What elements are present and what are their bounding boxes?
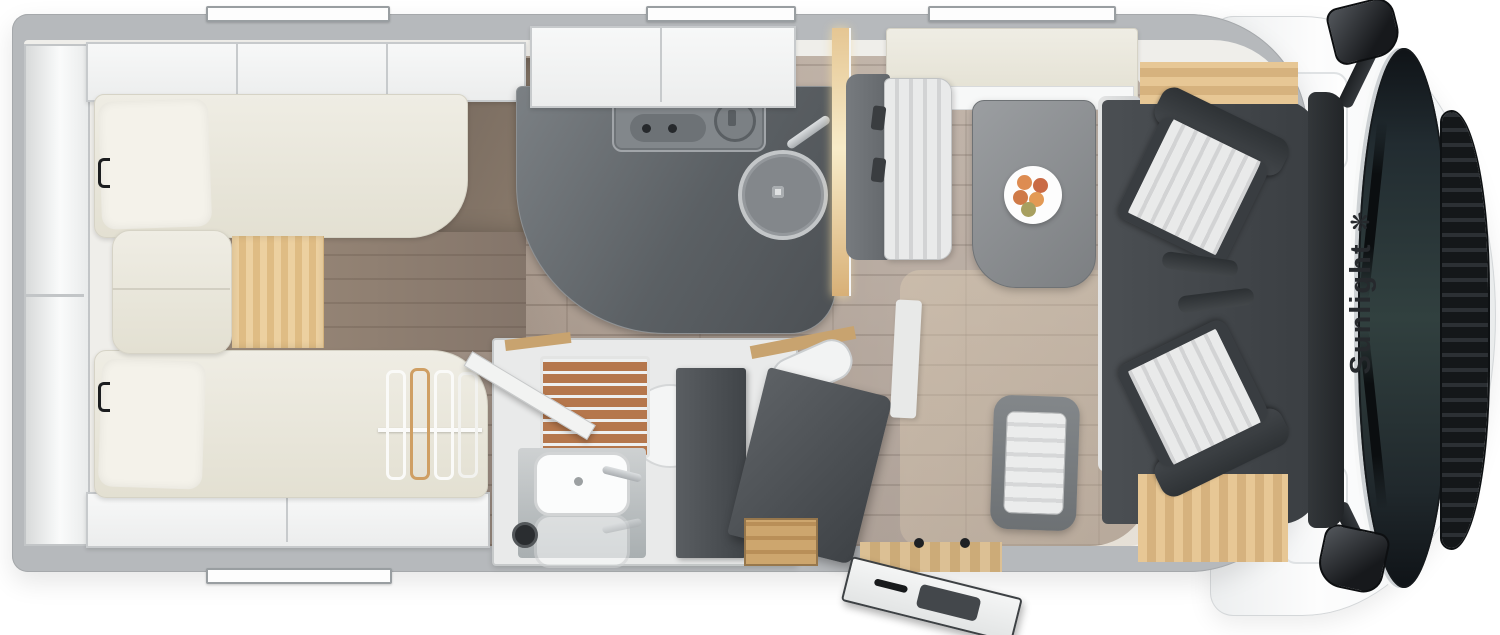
hanger-icon: [386, 370, 406, 480]
burner-cross: [728, 110, 736, 126]
window-top-kitchen: [646, 6, 796, 22]
bed-clamp-icon: [98, 158, 110, 188]
motorhome-floorplan: Sunlight ❋: [0, 0, 1500, 635]
bed-clamp-icon: [98, 382, 110, 412]
locker-divider: [236, 44, 238, 96]
entry-door-window: [916, 584, 982, 622]
sink-drain: [772, 186, 784, 198]
dinette-bench-cushion: [884, 78, 952, 260]
hanger-icon: [458, 372, 478, 478]
hanger-icon: [410, 368, 430, 480]
window-top-rear: [206, 6, 390, 22]
travel-seat: [990, 395, 1081, 532]
oak-step-panel: [232, 236, 324, 348]
pillow-top-bed: [98, 98, 212, 230]
sun-star-icon: ❋: [1346, 212, 1376, 233]
hob-knob: [642, 124, 651, 133]
locker-divider: [386, 44, 388, 96]
wardrobe-hangers: [378, 366, 482, 482]
entry-door-handle: [874, 578, 909, 593]
door-stop: [914, 538, 924, 548]
bedside-step-cushion: [112, 230, 232, 354]
dashboard: [1308, 92, 1344, 528]
front-grille: [1442, 112, 1488, 548]
brand-logo-text: Sunlight: [1345, 242, 1378, 374]
shower-drain-hole: [512, 522, 538, 548]
brand-logo: Sunlight ❋: [1343, 153, 1379, 433]
cushion-seam: [112, 288, 230, 290]
kitchen-overhead-cabinets: [530, 26, 796, 108]
basin-drain: [574, 477, 583, 486]
overhead-locker-row-top: [86, 42, 526, 102]
rear-shelf-divider: [26, 294, 84, 297]
window-bottom-rear: [206, 568, 392, 584]
hob-knob: [668, 124, 677, 133]
locker-divider: [286, 494, 288, 542]
hanger-icon: [434, 370, 454, 480]
pillow-bottom-bed: [98, 358, 206, 490]
window-top-dinette: [928, 6, 1116, 22]
fruit: [1033, 178, 1048, 193]
bathroom-drawer: [744, 518, 818, 566]
door-stop: [960, 538, 970, 548]
cabinet-divider: [660, 28, 662, 102]
fruit: [1017, 175, 1032, 190]
fruit-plate: [1004, 166, 1062, 224]
travel-seat-cushion: [1003, 411, 1067, 515]
fruit: [1021, 202, 1036, 217]
overhead-locker-row-bottom: [86, 492, 490, 548]
